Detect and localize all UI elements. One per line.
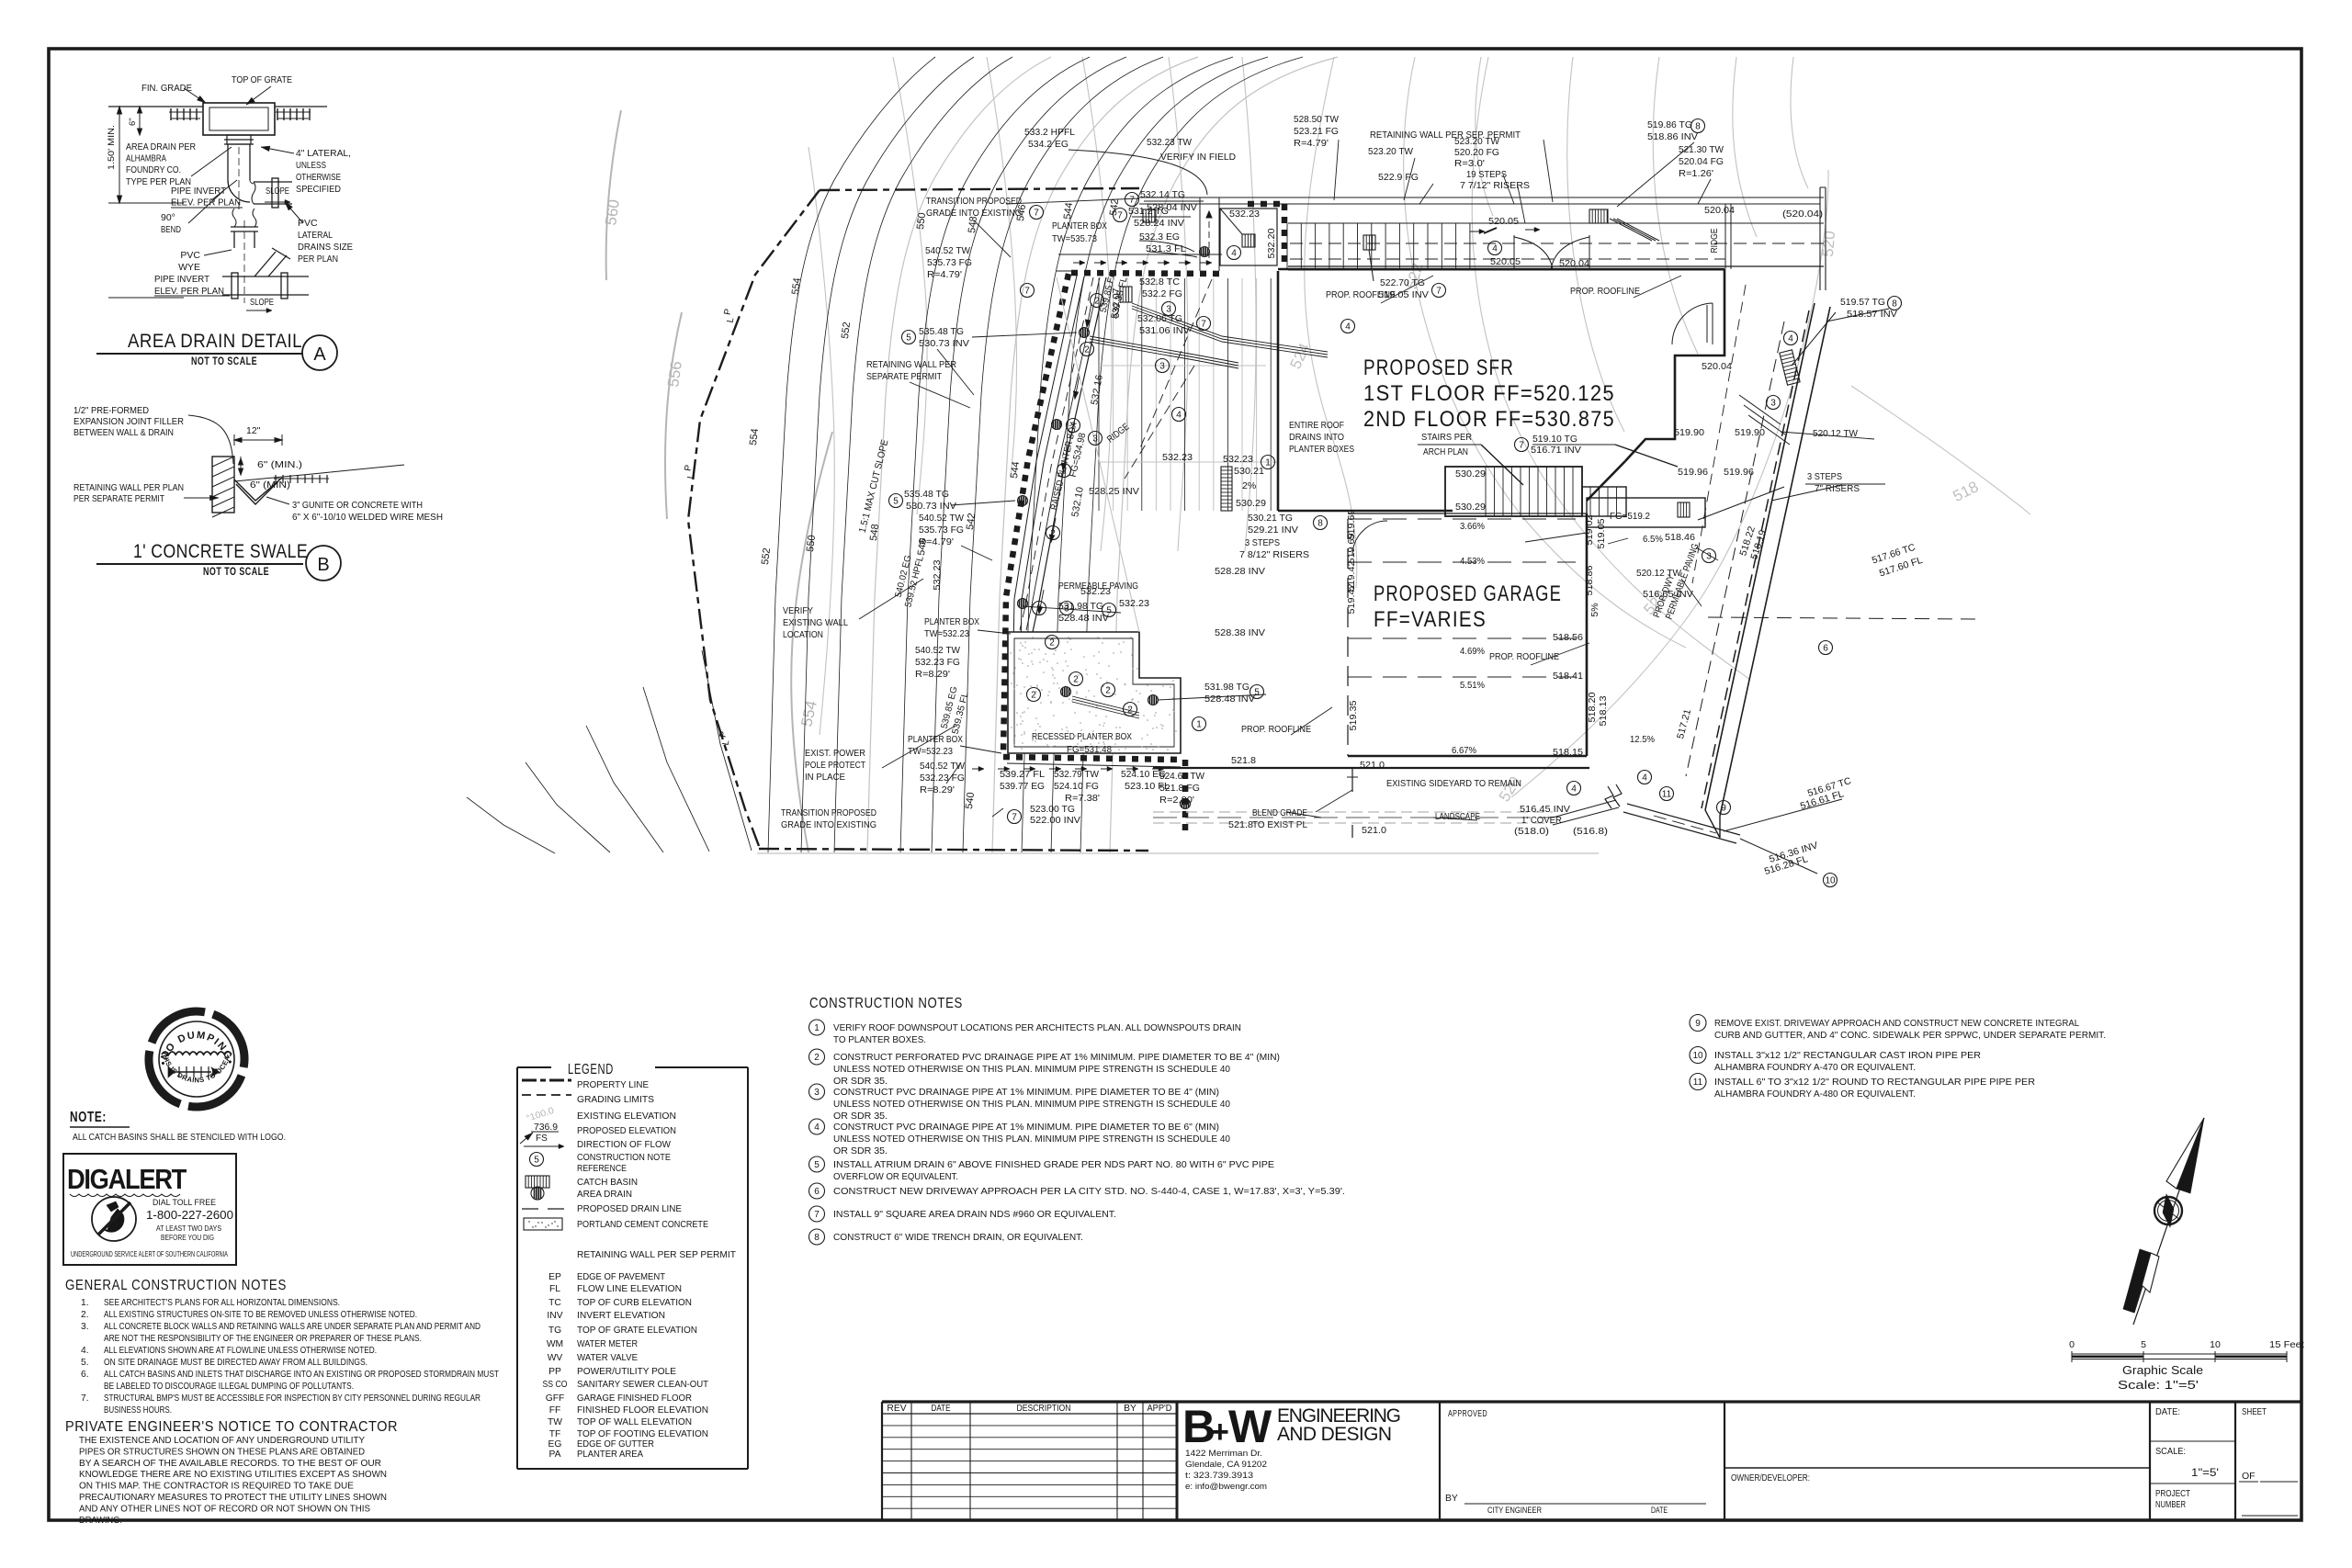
svg-text:TW: TW [548, 1417, 562, 1427]
svg-text:FL: FL [549, 1284, 560, 1294]
svg-text:518.46: 518.46 [1665, 532, 1695, 543]
svg-text:2: 2 [1070, 421, 1076, 431]
svg-text:TRANSITION PROPOSED: TRANSITION PROPOSED [926, 196, 1022, 207]
svg-text:GRADE INTO EXISTING: GRADE INTO EXISTING [781, 819, 876, 830]
svg-text:532.06 TG: 532.06 TG [1137, 313, 1182, 324]
svg-text:533.2 HPFL: 533.2 HPFL [1024, 127, 1075, 138]
svg-text:5: 5 [814, 1160, 820, 1170]
svg-text:7: 7 [1012, 812, 1017, 822]
svg-text:PIPE INVERT: PIPE INVERT [154, 274, 210, 285]
svg-text:WATER METER: WATER METER [577, 1339, 638, 1349]
svg-text:4.69%: 4.69% [1460, 646, 1485, 657]
svg-text:1422 Merriman Dr.: 1422 Merriman Dr. [1185, 1449, 1262, 1459]
svg-text:ARCH PLAN: ARCH PLAN [1423, 446, 1468, 457]
svg-text:519.05: 519.05 [1596, 518, 1607, 548]
svg-text:7: 7 [1436, 286, 1442, 296]
svg-text:R=4.79': R=4.79' [927, 269, 962, 280]
svg-text:4: 4 [814, 1122, 820, 1133]
svg-text:VERIFY IN FIELD: VERIFY IN FIELD [1160, 152, 1236, 163]
svg-text:552: 552 [760, 547, 773, 566]
svg-text:6" X 6"-10/10 WELDED WIRE MESH: 6" X 6"-10/10 WELDED WIRE MESH [292, 512, 443, 523]
svg-text:PLANTER BOX: PLANTER BOX [924, 616, 979, 627]
svg-text:520.20 FG: 520.20 FG [1454, 147, 1499, 158]
svg-text:7 8/12" RISERS: 7 8/12" RISERS [1239, 549, 1309, 560]
svg-text:ALHAMBRA FOUNDRY A-480 OR EQUI: ALHAMBRA FOUNDRY A-480 OR EQUIVALENT. [1714, 1089, 1916, 1100]
svg-text:FS: FS [536, 1134, 548, 1144]
svg-text:WYE: WYE [178, 262, 200, 273]
svg-text:AREA DRAIN PER: AREA DRAIN PER [126, 141, 196, 152]
svg-text:522.00 INV: 522.00 INV [1030, 815, 1080, 826]
svg-text:521.8: 521.8 [1231, 755, 1256, 766]
svg-text:SEE ARCHITECT'S PLANS FOR ALL: SEE ARCHITECT'S PLANS FOR ALL HORIZONTAL… [104, 1298, 340, 1308]
svg-text:554: 554 [748, 428, 761, 446]
svg-text:1.50' MIN.: 1.50' MIN. [107, 125, 117, 170]
svg-text:PLANTER BOXES: PLANTER BOXES [1289, 444, 1354, 455]
svg-text:CONSTRUCT PVC DRAINAGE PIPE AT: CONSTRUCT PVC DRAINAGE PIPE AT 1% MINIMU… [833, 1088, 1219, 1098]
svg-text:4: 4 [1788, 333, 1793, 344]
svg-text:90°: 90° [161, 212, 175, 223]
svg-text:SANITARY SEWER CLEAN-OUT: SANITARY SEWER CLEAN-OUT [577, 1380, 709, 1390]
svg-text:519.86 TG: 519.86 TG [1647, 119, 1692, 130]
svg-text:530.21: 530.21 [1234, 466, 1264, 477]
svg-text:R=4.79': R=4.79' [919, 536, 954, 547]
svg-text:1' CONCRETE SWALE: 1' CONCRETE SWALE [133, 540, 308, 562]
svg-text:VERIFY: VERIFY [783, 605, 813, 616]
svg-text:6.: 6. [81, 1370, 89, 1380]
svg-text:3 STEPS: 3 STEPS [1807, 471, 1842, 482]
svg-text:523.21 FG: 523.21 FG [1294, 126, 1339, 137]
svg-text:TC: TC [548, 1298, 561, 1308]
svg-text:2: 2 [1105, 685, 1111, 695]
svg-text:OR SDR 35.: OR SDR 35. [833, 1111, 888, 1122]
svg-text:10: 10 [1825, 875, 1836, 886]
svg-text:5: 5 [893, 496, 899, 506]
svg-text:EG: EG [548, 1439, 562, 1450]
svg-text:INVERT ELEVATION: INVERT ELEVATION [577, 1311, 665, 1321]
svg-text:DRAINS INTO: DRAINS INTO [1289, 432, 1344, 443]
svg-text:AND DESIGN: AND DESIGN [1277, 1424, 1392, 1445]
svg-text:ALHAMBRA FOUNDRY A-470 OR EQUI: ALHAMBRA FOUNDRY A-470 OR EQUIVALENT. [1714, 1063, 1916, 1073]
svg-text:TO EXIST PL: TO EXIST PL [1252, 819, 1307, 830]
svg-text:3: 3 [1159, 361, 1165, 371]
svg-text:ALL CONCRETE BLOCK WALLS AND R: ALL CONCRETE BLOCK WALLS AND RETAINING W… [104, 1322, 481, 1332]
svg-text:PRIVATE ENGINEER'S NOTICE TO C: PRIVATE ENGINEER'S NOTICE TO CONTRACTOR [65, 1419, 398, 1435]
svg-text:522.9 FG: 522.9 FG [1378, 172, 1419, 183]
svg-text:518.13: 518.13 [1598, 695, 1609, 726]
svg-text:POWER/UTILITY POLE: POWER/UTILITY POLE [577, 1367, 676, 1377]
svg-text:EXIST. POWER: EXIST. POWER [805, 748, 865, 759]
svg-text:520.04: 520.04 [1559, 258, 1589, 269]
svg-text:518.57 INV: 518.57 INV [1847, 309, 1897, 320]
svg-text:DATE: DATE [1651, 1506, 1668, 1515]
svg-text:FOUNDRY CO.: FOUNDRY CO. [126, 164, 181, 175]
svg-text:2: 2 [814, 1053, 820, 1063]
svg-text:7: 7 [1201, 319, 1206, 329]
svg-text:11: 11 [1662, 789, 1672, 799]
svg-text:7: 7 [1024, 286, 1030, 296]
svg-text:TOP OF GRATE ELEVATION: TOP OF GRATE ELEVATION [577, 1325, 697, 1336]
svg-text:TW=532.23: TW=532.23 [908, 746, 953, 757]
svg-text:A: A [313, 344, 326, 365]
svg-text:5: 5 [1254, 687, 1260, 697]
svg-text:521.0: 521.0 [1362, 825, 1386, 836]
svg-text:DESCRIPTION: DESCRIPTION [1017, 1404, 1071, 1414]
svg-text:528.38 INV: 528.38 INV [1215, 627, 1265, 638]
svg-text:APPROVED: APPROVED [1448, 1409, 1487, 1419]
svg-text:POLE PROTECT: POLE PROTECT [805, 760, 865, 771]
svg-text:UNLESS: UNLESS [296, 160, 326, 171]
svg-text:519.96: 519.96 [1678, 467, 1708, 478]
svg-text:DATE: DATE [932, 1404, 951, 1414]
svg-text:BY: BY [1445, 1494, 1458, 1504]
svg-text:AREA DRAIN DETAIL: AREA DRAIN DETAIL [128, 330, 302, 352]
svg-text:532.23: 532.23 [932, 559, 943, 590]
svg-text:6: 6 [814, 1187, 820, 1197]
svg-text:6" (MIN.): 6" (MIN.) [257, 459, 302, 470]
svg-text:OTHERWISE: OTHERWISE [296, 172, 341, 183]
svg-text:CONSTRUCT NEW DRIVEWAY APPROAC: CONSTRUCT NEW DRIVEWAY APPROACH PER LA C… [833, 1187, 1345, 1197]
svg-text:PVC: PVC [180, 250, 200, 261]
svg-text:5: 5 [534, 1155, 539, 1165]
svg-text:532.3 EG: 532.3 EG [1139, 231, 1180, 243]
svg-text:519.69: 519.69 [1346, 533, 1357, 563]
svg-text:523.00 TG: 523.00 TG [1030, 804, 1075, 815]
svg-text:RETAINING WALL PER: RETAINING WALL PER [866, 359, 956, 370]
svg-text:TOP OF CURB ELEVATION: TOP OF CURB ELEVATION [577, 1298, 692, 1308]
svg-text:9: 9 [1695, 1019, 1701, 1029]
svg-text:7: 7 [1117, 210, 1123, 220]
svg-text:532.14 TG: 532.14 TG [1140, 189, 1185, 200]
svg-text:519.57 TG: 519.57 TG [1840, 297, 1885, 308]
svg-text:5.: 5. [81, 1358, 89, 1368]
svg-text:SPECIFIED: SPECIFIED [296, 184, 341, 195]
svg-text:530.29: 530.29 [1455, 468, 1486, 479]
svg-text:534.2 EG: 534.2 EG [1028, 139, 1069, 150]
svg-text:529.21 INV: 529.21 INV [1248, 525, 1298, 536]
svg-text:B: B [317, 555, 329, 575]
svg-text:ALL CATCH BASINS AND INLETS TH: ALL CATCH BASINS AND INLETS THAT DISCHAR… [104, 1370, 500, 1380]
svg-text:528.28 INV: 528.28 INV [1215, 566, 1265, 577]
svg-text:B: B [1182, 1401, 1214, 1452]
svg-text:535.73 FG: 535.73 FG [919, 525, 964, 536]
svg-text:11: 11 [1693, 1077, 1703, 1088]
svg-text:BUSINESS HOURS.: BUSINESS HOURS. [104, 1405, 172, 1416]
svg-text:AND ANY OTHER LINES NOT OF REC: AND ANY OTHER LINES NOT OF RECORD OR NOT… [79, 1504, 370, 1514]
svg-text:BLEND GRADE: BLEND GRADE [1252, 807, 1307, 818]
svg-text:KNOWLEDGE THERE ARE NO EXISTIN: KNOWLEDGE THERE ARE NO EXISTING UTILITIE… [79, 1470, 387, 1480]
svg-text:8: 8 [1892, 299, 1897, 309]
svg-text:ON THIS MAP. THE CONTRACTOR IS: ON THIS MAP. THE CONTRACTOR IS REQUIRED … [79, 1482, 354, 1492]
svg-text:6": 6" [128, 118, 138, 126]
svg-text:530.21 TG: 530.21 TG [1248, 513, 1293, 524]
svg-text:THE EXISTENCE AND LOCATION OF: THE EXISTENCE AND LOCATION OF ANY UNDERG… [79, 1436, 365, 1446]
svg-text:GRADING LIMITS: GRADING LIMITS [577, 1095, 654, 1105]
svg-text:540.52 TW: 540.52 TW [919, 513, 964, 524]
svg-text:518.15: 518.15 [1553, 747, 1583, 758]
svg-text:530.29: 530.29 [1236, 498, 1266, 509]
svg-text:CONSTRUCT 6" WIDE TRENCH DRAIN: CONSTRUCT 6" WIDE TRENCH DRAIN, OR EQUIV… [833, 1233, 1083, 1243]
svg-text:NOT TO SCALE: NOT TO SCALE [203, 567, 269, 578]
svg-text:R=3.0': R=3.0' [1454, 158, 1485, 169]
svg-text:t: 323.739.3913: t: 323.739.3913 [1185, 1471, 1253, 1481]
svg-text:548: 548 [868, 524, 881, 542]
svg-text:520.05: 520.05 [1490, 256, 1521, 267]
svg-text:2: 2 [1084, 344, 1090, 355]
svg-text:W: W [1228, 1401, 1272, 1452]
svg-text:518.86 INV: 518.86 INV [1647, 131, 1698, 142]
svg-text:BETWEEN WALL & DRAIN: BETWEEN WALL & DRAIN [73, 427, 174, 438]
svg-text:ON SITE DRAINAGE MUST BE DIREC: ON SITE DRAINAGE MUST BE DIRECTED AWAY F… [104, 1358, 367, 1368]
svg-text:521.8: 521.8 [1228, 819, 1253, 830]
svg-text:R=4.79': R=4.79' [1294, 138, 1329, 149]
svg-text:3 STEPS: 3 STEPS [1245, 537, 1280, 548]
svg-text:SCALE:: SCALE: [2155, 1446, 2186, 1457]
svg-text:TOP OF GRATE: TOP OF GRATE [232, 74, 292, 85]
svg-text:INSTALL ATRIUM DRAIN 6" ABOVE: INSTALL ATRIUM DRAIN 6" ABOVE FINISHED G… [833, 1160, 1274, 1170]
svg-text:4: 4 [1231, 248, 1237, 258]
svg-text:532.2 FG: 532.2 FG [1142, 288, 1182, 299]
svg-text:520.04: 520.04 [1702, 361, 1732, 372]
svg-text:GENERAL CONSTRUCTION NOTES: GENERAL CONSTRUCTION NOTES [65, 1278, 287, 1293]
svg-text:WM: WM [547, 1339, 563, 1349]
svg-text:2: 2 [1050, 528, 1056, 538]
svg-text:UNLESS NOTED OTHERWISE ON THIS: UNLESS NOTED OTHERWISE ON THIS PLAN. MIN… [833, 1134, 1230, 1145]
svg-text:STRUCTURAL BMP'S MUST BE ACCES: STRUCTURAL BMP'S MUST BE ACCESSIBLE FOR … [104, 1393, 481, 1404]
svg-text:4: 4 [1571, 784, 1577, 794]
svg-text:CONSTRUCT PVC DRAINAGE PIPE AT: CONSTRUCT PVC DRAINAGE PIPE AT 1% MINIMU… [833, 1122, 1219, 1133]
svg-text:1: 1 [1196, 719, 1202, 729]
svg-text:519.90: 519.90 [1674, 427, 1704, 438]
svg-text:LATERAL: LATERAL [298, 230, 333, 241]
svg-text:540.52 TW: 540.52 TW [915, 645, 960, 656]
svg-text:R=7.38': R=7.38' [1065, 793, 1100, 804]
svg-text:BEND: BEND [161, 224, 181, 235]
svg-text:CONSTRUCTION NOTES: CONSTRUCTION NOTES [809, 996, 963, 1011]
svg-text:FLOW LINE ELEVATION: FLOW LINE ELEVATION [577, 1284, 682, 1294]
svg-text:OF: OF [2242, 1471, 2256, 1482]
svg-text:3" GUNITE OR CONCRETE WITH: 3" GUNITE OR CONCRETE WITH [292, 500, 423, 511]
svg-text:CONSTRUCTION NOTE: CONSTRUCTION NOTE [577, 1153, 671, 1163]
svg-text:R=2.80': R=2.80' [1159, 795, 1194, 806]
svg-text:531.06 INV: 531.06 INV [1139, 325, 1190, 336]
svg-text:5: 5 [2141, 1339, 2146, 1350]
svg-text:0: 0 [2069, 1339, 2075, 1350]
svg-text:LEGEND: LEGEND [568, 1062, 614, 1077]
svg-text:1"=5': 1"=5' [2191, 1468, 2219, 1479]
svg-text:PER SEPARATE PERMIT: PER SEPARATE PERMIT [73, 494, 164, 504]
svg-text:DATE:: DATE: [2155, 1406, 2180, 1417]
svg-text:FG=531.48: FG=531.48 [1067, 744, 1112, 755]
svg-text:520.05: 520.05 [1488, 216, 1519, 227]
svg-text:BE LABELED TO DISCOURAGE ILLEG: BE LABELED TO DISCOURAGE ILLEGAL DUMPING… [104, 1382, 354, 1392]
svg-text:528.25 INV: 528.25 INV [1089, 486, 1139, 497]
svg-text:7: 7 [1519, 440, 1524, 450]
svg-text:531.98 TG: 531.98 TG [1204, 682, 1249, 693]
svg-text:532.23 TW: 532.23 TW [1147, 137, 1192, 148]
svg-text:3: 3 [1092, 434, 1098, 444]
svg-text:4: 4 [1176, 410, 1182, 420]
svg-text:INSTALL 3"x12 1/2" RECTANGULAR: INSTALL 3"x12 1/2" RECTANGULAR CAST IRON… [1714, 1051, 1981, 1061]
svg-text:539.77 EG: 539.77 EG [1000, 781, 1045, 792]
svg-text:518.41: 518.41 [1553, 671, 1583, 682]
svg-text:3.: 3. [81, 1322, 89, 1332]
svg-text:PROP. ROOFLINE: PROP. ROOFLINE [1570, 286, 1640, 297]
svg-text:R=1.26': R=1.26' [1679, 168, 1713, 179]
svg-text:2ND FLOOR FF=530.875: 2ND FLOOR FF=530.875 [1363, 407, 1615, 432]
svg-text:524.60 TW: 524.60 TW [1159, 771, 1204, 782]
svg-text:7: 7 [1129, 195, 1135, 205]
svg-text:REMOVE EXIST. DRIVEWAY APPROAC: REMOVE EXIST. DRIVEWAY APPROACH AND CONS… [1714, 1019, 2079, 1029]
svg-text:APP'D: APP'D [1148, 1404, 1172, 1414]
svg-text:516.45 INV: 516.45 INV [1520, 804, 1570, 815]
svg-text:SHEET: SHEET [2242, 1406, 2267, 1417]
svg-text:GRADE INTO EXISTING: GRADE INTO EXISTING [926, 208, 1022, 219]
svg-text:535.48 TG: 535.48 TG [904, 489, 949, 500]
svg-text:2: 2 [1127, 705, 1133, 715]
svg-text:532.23: 532.23 [1119, 598, 1149, 609]
svg-text:EDGE OF GUTTER: EDGE OF GUTTER [577, 1439, 654, 1450]
svg-text:TW=535.73: TW=535.73 [1052, 233, 1097, 244]
svg-text:VERIFY ROOF DOWNSPOUT LOCATION: VERIFY ROOF DOWNSPOUT LOCATIONS PER ARCH… [833, 1023, 1241, 1033]
svg-text:TW=532.23: TW=532.23 [924, 628, 969, 639]
svg-text:EXISTING SIDEYARD TO REMAIN: EXISTING SIDEYARD TO REMAIN [1386, 778, 1521, 789]
svg-text:532.79 TW: 532.79 TW [1054, 769, 1099, 780]
svg-text:520.04: 520.04 [1704, 205, 1735, 216]
svg-text:SEPARATE PERMIT: SEPARATE PERMIT [866, 371, 942, 382]
svg-text:PER PLAN: PER PLAN [298, 254, 338, 265]
svg-text:530.73 INV: 530.73 INV [906, 501, 956, 512]
svg-text:6.5%: 6.5% [1643, 534, 1663, 545]
svg-text:4: 4 [1492, 243, 1498, 254]
svg-text:DRAINS SIZE: DRAINS SIZE [298, 242, 353, 253]
svg-text:EP: EP [548, 1272, 561, 1282]
svg-text:EXPANSION JOINT FILLER: EXPANSION JOINT FILLER [73, 416, 184, 427]
svg-text:1/2" PRE-FORMED: 1/2" PRE-FORMED [73, 405, 149, 416]
svg-text:CITY ENGINEER: CITY ENGINEER [1487, 1506, 1542, 1515]
svg-text:WATER VALVE: WATER VALVE [577, 1353, 638, 1363]
svg-text:REV: REV [887, 1404, 906, 1414]
svg-text:PP: PP [548, 1367, 561, 1377]
svg-text:550: 550 [805, 535, 818, 553]
svg-text:PLANTER BOX: PLANTER BOX [908, 734, 963, 745]
svg-text:PA: PA [549, 1450, 561, 1460]
svg-text:531.2 TG: 531.2 TG [1128, 206, 1169, 217]
svg-text:544: 544 [1009, 461, 1022, 479]
svg-text:PROJECT: PROJECT [2155, 1488, 2190, 1499]
svg-text:10: 10 [2210, 1339, 2221, 1350]
svg-text:DIRECTION OF FLOW: DIRECTION OF FLOW [577, 1140, 671, 1150]
svg-text:3: 3 [1770, 398, 1776, 408]
svg-text:3: 3 [814, 1088, 820, 1098]
svg-text:519.96: 519.96 [1724, 467, 1754, 478]
svg-text:CONSTRUCT PERFORATED PVC DRAIN: CONSTRUCT PERFORATED PVC DRAINAGE PIPE A… [833, 1053, 1280, 1063]
svg-text:532.8 TC: 532.8 TC [1139, 276, 1180, 288]
svg-text:3.66%: 3.66% [1460, 521, 1485, 532]
svg-text:8: 8 [1695, 121, 1701, 131]
svg-text:GARAGE FINISHED FLOOR: GARAGE FINISHED FLOOR [577, 1393, 692, 1404]
svg-text:OR SDR 35.: OR SDR 35. [833, 1146, 888, 1156]
svg-text:FINISHED FLOOR ELEVATION: FINISHED FLOOR ELEVATION [577, 1405, 708, 1416]
svg-text:(518.0): (518.0) [1514, 826, 1549, 837]
svg-text:5.51%: 5.51% [1460, 680, 1485, 691]
svg-text:3: 3 [1036, 604, 1042, 614]
svg-text:TG: TG [548, 1325, 561, 1336]
svg-text:SS CO: SS CO [543, 1380, 568, 1390]
svg-text:542: 542 [965, 513, 978, 531]
svg-text:TF: TF [549, 1429, 561, 1439]
svg-text:FF: FF [549, 1405, 561, 1416]
svg-text:5: 5 [906, 333, 911, 343]
svg-text:524.10 FG: 524.10 FG [1054, 781, 1099, 792]
svg-text:552: 552 [840, 321, 853, 340]
svg-text:540: 540 [964, 792, 977, 810]
svg-text:4.: 4. [81, 1346, 89, 1356]
svg-text:AREA DRAIN: AREA DRAIN [577, 1190, 632, 1200]
svg-text:2: 2 [1049, 637, 1055, 648]
svg-text:6: 6 [1823, 643, 1828, 653]
svg-text:PRECAUTIONARY MEASURES TO PROT: PRECAUTIONARY MEASURES TO PROTECT THE UT… [79, 1493, 387, 1503]
svg-text:560: 560 [602, 198, 623, 227]
svg-text:518.20: 518.20 [1587, 692, 1598, 722]
svg-text:PIPES OR STRUCTURES SHOWN ON T: PIPES OR STRUCTURES SHOWN ON THESE PLANS… [79, 1447, 365, 1457]
svg-text:RETAINING WALL PER SEP. PERMIT: RETAINING WALL PER SEP. PERMIT [1370, 130, 1521, 141]
svg-text:PORTLAND CEMENT CONCRETE: PORTLAND CEMENT CONCRETE [577, 1220, 708, 1230]
svg-text:R=8.29': R=8.29' [920, 784, 955, 795]
svg-text:519.42: 519.42 [1346, 583, 1357, 614]
svg-text:EXISTING ELEVATION: EXISTING ELEVATION [577, 1111, 676, 1122]
svg-text:PROPOSED GARAGE: PROPOSED GARAGE [1374, 581, 1562, 606]
svg-text:519.02: 519.02 [1584, 514, 1595, 545]
svg-text:INSTALL 6" TO 3"x12 1/2" ROUND: INSTALL 6" TO 3"x12 1/2" ROUND TO RECTAN… [1714, 1077, 2035, 1088]
svg-text:1: 1 [814, 1023, 820, 1033]
svg-text:CATCH BASIN: CATCH BASIN [577, 1178, 638, 1188]
svg-text:ALL EXISTING STRUCTURES ON-SIT: ALL EXISTING STRUCTURES ON-SITE TO BE RE… [104, 1310, 417, 1320]
svg-text:2: 2 [1031, 690, 1036, 700]
svg-text:1-800-227-2600: 1-800-227-2600 [146, 1208, 233, 1222]
svg-text:PVC: PVC [298, 218, 318, 229]
svg-text:9: 9 [1721, 803, 1726, 813]
svg-text:Glendale, CA 91202: Glendale, CA 91202 [1185, 1460, 1267, 1470]
svg-text:OWNER/DEVELOPER:: OWNER/DEVELOPER: [1731, 1473, 1810, 1483]
svg-text:DRAWING.: DRAWING. [79, 1516, 122, 1526]
svg-text:NOTE:: NOTE: [70, 1110, 107, 1125]
svg-text:8: 8 [1317, 518, 1323, 528]
svg-text:7" RISERS: 7" RISERS [1815, 483, 1860, 494]
svg-text:556: 556 [664, 360, 685, 389]
svg-text:4.53%: 4.53% [1460, 556, 1485, 567]
svg-text:531.3 FL: 531.3 FL [1146, 243, 1186, 254]
svg-text:TOP OF FOOTING ELEVATION: TOP OF FOOTING ELEVATION [577, 1429, 708, 1439]
svg-text:1ST FLOOR FF=520.125: 1ST FLOOR FF=520.125 [1363, 381, 1615, 406]
svg-text:2%: 2% [1242, 480, 1256, 491]
svg-text:554: 554 [790, 277, 803, 296]
svg-text:520.04 FG: 520.04 FG [1679, 156, 1724, 167]
svg-text:NUMBER: NUMBER [2155, 1499, 2186, 1510]
svg-text:ALL CATCH BASINS SHALL BE STEN: ALL CATCH BASINS SHALL BE STENCILED WITH… [73, 1133, 286, 1143]
svg-text:R=8.29': R=8.29' [915, 669, 950, 680]
svg-text:1: 1 [1265, 457, 1271, 468]
svg-text:ELEV. PER PLAN: ELEV. PER PLAN [154, 286, 224, 297]
svg-text:2: 2 [1061, 466, 1067, 476]
svg-text:TO PLANTER BOXES.: TO PLANTER BOXES. [833, 1035, 926, 1045]
svg-text:Scale: 1"=5': Scale: 1"=5' [2118, 1378, 2199, 1392]
svg-text:7: 7 [814, 1210, 820, 1220]
svg-text:532.23 FG: 532.23 FG [920, 773, 965, 784]
svg-text:PROPOSED DRAIN LINE: PROPOSED DRAIN LINE [577, 1204, 682, 1214]
svg-text:532.23: 532.23 [1223, 454, 1253, 465]
svg-text:528.48 INV: 528.48 INV [1058, 613, 1109, 624]
svg-text:521.0: 521.0 [1360, 760, 1385, 771]
